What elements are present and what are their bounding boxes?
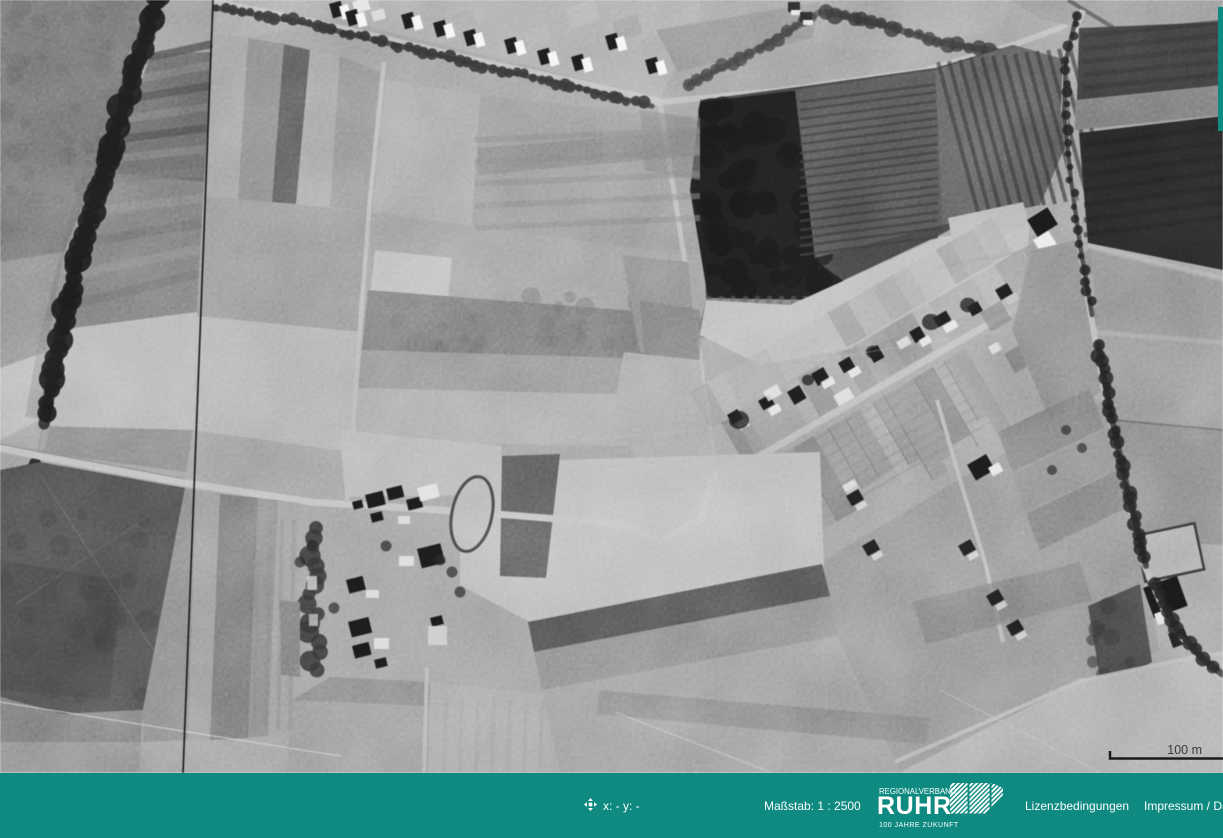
svg-text:100 JAHRE ZUKUNFT: 100 JAHRE ZUKUNFT [879,822,959,829]
svg-text:100 m: 100 m [1167,743,1202,757]
svg-text:RUHR: RUHR [877,792,952,820]
